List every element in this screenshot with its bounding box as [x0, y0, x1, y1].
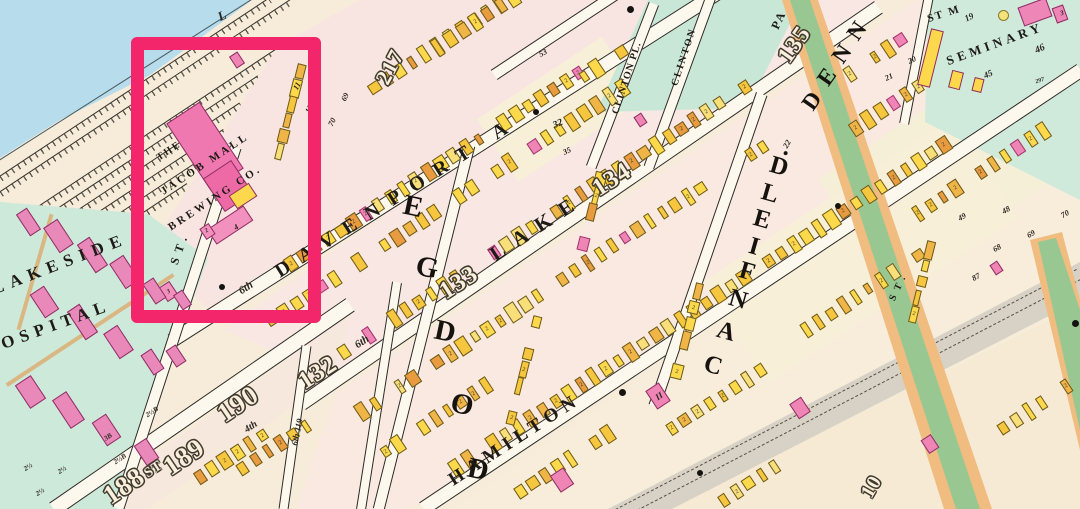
house-storey-label: 2 — [509, 415, 513, 422]
house-storey-label: 2 — [791, 241, 797, 248]
house-storey-label: 2 — [416, 299, 422, 306]
house-storey-label: 2 — [691, 117, 697, 124]
house-storey-label: 2 — [928, 202, 934, 209]
house-storey-label: 2 — [397, 384, 403, 391]
seminary-fountain — [998, 10, 1009, 21]
survey-dot — [619, 389, 626, 396]
house-storey-label: 2 — [629, 158, 635, 165]
house: 2 — [256, 429, 269, 443]
house-storey-label: 2 — [853, 125, 859, 132]
house-storey-label: 2 — [383, 449, 389, 456]
house-storey-label: 2 — [603, 365, 609, 372]
house-storey-label: 2 — [941, 142, 947, 149]
house-storey-label: 2 — [747, 152, 753, 159]
house-storey-label: 2 — [903, 92, 909, 99]
house-storey-label: 2 — [891, 175, 897, 182]
house-storey-label: 2 — [1064, 383, 1070, 390]
survey-dot — [627, 6, 634, 13]
house-storey-label: 2 — [911, 311, 915, 318]
house-storey-label: 2 — [978, 169, 984, 176]
house — [236, 460, 251, 476]
survey-dot — [1072, 320, 1079, 327]
house-storey-label: 2 — [685, 193, 691, 200]
house-storey-label: 2 — [679, 125, 685, 132]
house-storey-label: 2 — [695, 409, 701, 416]
house-storey-label: 2 — [510, 0, 516, 1]
house-storey-label: 2 — [741, 84, 747, 91]
highlight-rectangle[interactable] — [131, 37, 321, 323]
house-storey-label: 2 — [670, 425, 676, 432]
house-storey-label: 2 — [953, 186, 959, 193]
house-storey-label: 2 — [563, 78, 569, 85]
house-storey-label: 2 — [473, 19, 479, 26]
house-storey-label: 2 — [704, 109, 710, 116]
house-storey-label: 2 — [675, 369, 679, 376]
house-storey-label: 2 — [222, 457, 228, 464]
house-storey-label: 2 — [578, 382, 584, 389]
house-storey-label: 2 — [878, 277, 884, 284]
survey-dot — [533, 109, 539, 115]
house-storey-label: 2 — [682, 417, 688, 424]
atlas-map: 2222222222222222222222222222222222222222… — [0, 0, 1080, 509]
house-storey-label: 2 — [720, 392, 726, 399]
house-storey-label: 2 — [766, 258, 772, 265]
house-storey-label: 2 — [734, 488, 740, 495]
house-storey-label: 2 — [916, 210, 922, 217]
survey-dot — [697, 470, 703, 476]
house — [262, 444, 275, 459]
house-storey-label: 2 — [521, 367, 525, 374]
house-storey-label: 2 — [692, 305, 696, 312]
house-storey-label: 2 — [607, 93, 613, 100]
house — [243, 435, 258, 452]
house-storey-label: 2 — [497, 317, 503, 324]
house-storey-label: 2 — [485, 326, 491, 333]
house-storey-label: 2 — [260, 432, 266, 439]
house-storey-label: 2 — [848, 70, 854, 77]
house — [249, 452, 263, 467]
survey-dot — [835, 203, 841, 209]
house-storey-label: 2 — [507, 159, 513, 166]
house-storey-label: 2 — [278, 440, 284, 447]
house-storey-label: 2 — [841, 208, 847, 215]
house-storey-label: 2 — [585, 259, 591, 266]
house-storey-label: 2 — [873, 54, 879, 61]
house — [193, 469, 208, 485]
house: 2 — [229, 443, 245, 461]
house-storey-label: 2 — [235, 449, 241, 456]
house-storey-label: 2 — [447, 350, 453, 357]
house-storey-label: 2 — [1028, 136, 1034, 143]
house-storey-label: 2 — [628, 349, 634, 356]
